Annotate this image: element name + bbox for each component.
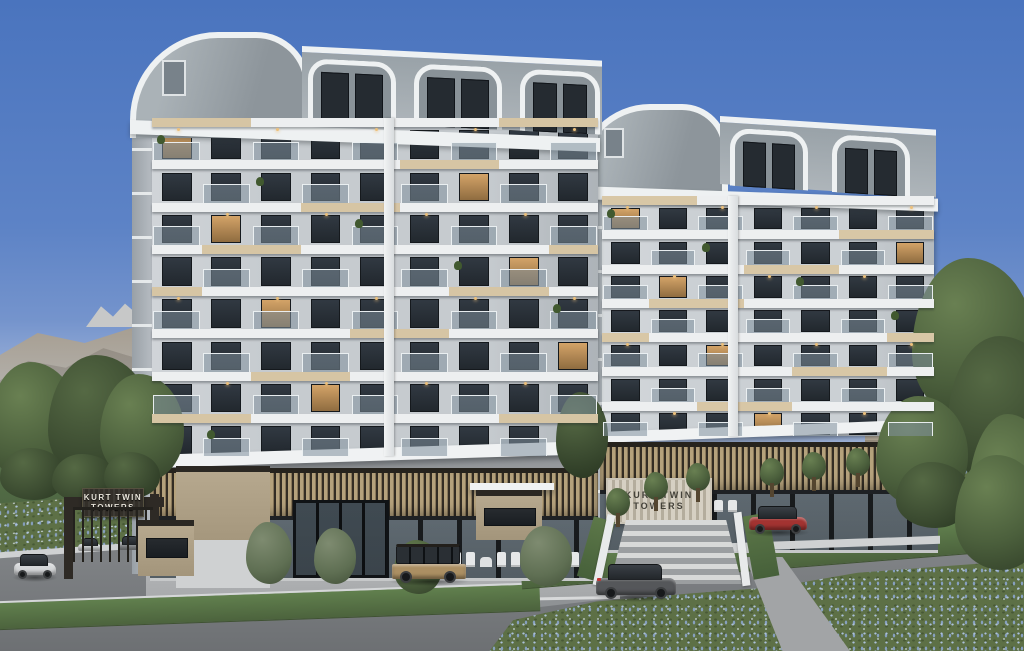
balcony-plant — [702, 243, 710, 252]
slab-segment — [449, 118, 499, 127]
apartment-unit — [251, 254, 301, 287]
slab-segment — [602, 196, 649, 205]
apartment-unit — [839, 342, 886, 367]
tree-trunk — [770, 483, 774, 497]
balcony-railing — [888, 285, 933, 299]
slab-segment — [887, 265, 934, 274]
apartment-window — [801, 310, 829, 332]
cafe-chair — [511, 552, 520, 567]
apartment-unit — [449, 212, 499, 245]
downlight — [276, 128, 279, 131]
apartment-unit — [152, 254, 202, 287]
balcony-slab — [602, 196, 934, 205]
roof-dormer — [832, 134, 910, 197]
downlight — [768, 275, 771, 278]
slab-segment — [400, 329, 450, 338]
balcony-railing — [153, 395, 200, 413]
balcony-railing — [500, 269, 547, 287]
apartment-unit — [152, 212, 202, 245]
roof-dormer — [308, 58, 396, 124]
slab-segment — [251, 118, 301, 127]
apartment-unit — [649, 308, 696, 333]
apartment-unit — [887, 274, 934, 299]
slab-segment — [839, 402, 886, 411]
apartment-unit — [744, 308, 791, 333]
apartment-unit — [887, 239, 934, 264]
apartment-window — [849, 345, 877, 367]
balcony-slab — [152, 414, 598, 423]
car-wheel — [755, 524, 765, 534]
apartment-window — [611, 310, 639, 332]
balcony-plant — [553, 304, 561, 313]
apartment-unit — [400, 212, 450, 245]
apartment-window — [261, 342, 291, 371]
apartment-unit — [202, 169, 252, 202]
balcony-railing — [746, 250, 791, 264]
apartment-unit — [839, 376, 886, 401]
plaza-sign-line2: TOWERS — [633, 501, 684, 512]
balcony-railing — [401, 269, 448, 287]
balcony-railing — [651, 388, 696, 402]
apartment-unit — [449, 338, 499, 371]
apartment-unit — [202, 338, 252, 371]
slab-segment — [202, 118, 252, 127]
apartment-window — [211, 215, 241, 244]
balcony-plant — [256, 177, 264, 186]
apartment-unit — [649, 376, 696, 401]
apartment-window — [410, 215, 440, 244]
apartment-unit — [549, 212, 599, 245]
balcony-railing — [451, 226, 498, 244]
apartment-unit — [499, 423, 549, 456]
apartment-unit — [202, 254, 252, 287]
balcony-railing — [302, 438, 349, 456]
apartment-window — [558, 342, 588, 371]
slab-segment — [301, 287, 351, 296]
slab-segment — [202, 245, 252, 254]
dormer-window — [845, 148, 868, 194]
floor-row — [152, 203, 598, 245]
floor-units — [602, 239, 934, 264]
apartment-window — [211, 384, 241, 413]
cafe-chair — [714, 500, 723, 512]
slab-segment — [792, 333, 839, 342]
apartment-unit — [792, 274, 839, 299]
slab-segment — [152, 203, 202, 212]
white-sedan-car — [14, 552, 56, 578]
slab-segment — [744, 299, 791, 308]
apartment-unit — [792, 308, 839, 333]
slab-segment — [400, 372, 450, 381]
apartment-unit — [202, 423, 252, 456]
apartment-unit — [202, 296, 252, 329]
tree-trunk — [812, 477, 816, 491]
apartment-unit — [400, 381, 450, 414]
slab-segment — [449, 245, 499, 254]
slab-segment — [449, 287, 499, 296]
slab-segment — [744, 402, 791, 411]
apartment-window — [162, 173, 192, 202]
apartment-unit — [202, 381, 252, 414]
floor-units — [602, 342, 934, 367]
apartment-window — [261, 257, 291, 286]
car-wheel — [655, 587, 667, 599]
balcony-railing — [603, 285, 648, 299]
slab-segment — [499, 203, 549, 212]
gate-sign-line1: KURT TWIN — [84, 493, 142, 503]
balcony-railing — [550, 395, 597, 413]
apartment-unit — [792, 239, 839, 264]
slab-segment — [744, 367, 791, 376]
apartment-unit — [301, 338, 351, 371]
balcony-railing — [550, 142, 597, 160]
balcony-slab — [602, 230, 934, 239]
apartment-unit — [549, 296, 599, 329]
slab-segment — [792, 299, 839, 308]
slab-segment — [602, 265, 649, 274]
apartment-unit — [499, 212, 549, 245]
slab-segment — [887, 333, 934, 342]
slab-segment — [400, 203, 450, 212]
slab-segment — [549, 372, 599, 381]
slab-segment — [839, 230, 886, 239]
cafe-chair — [466, 552, 475, 567]
apartment-window — [801, 379, 829, 401]
apartment-unit — [839, 239, 886, 264]
balcony-railing — [500, 353, 547, 371]
balcony-slab — [152, 329, 598, 338]
downlight — [626, 206, 629, 209]
balcony-slab — [152, 203, 598, 212]
balcony-railing — [841, 319, 886, 333]
balcony-plant — [207, 430, 215, 439]
apartment-window — [754, 345, 782, 367]
slab-segment — [549, 203, 599, 212]
slab-segment — [152, 245, 202, 254]
apartment-unit — [152, 169, 202, 202]
apartment-unit — [744, 342, 791, 367]
apartment-unit — [251, 338, 301, 371]
apartment-unit — [602, 239, 649, 264]
roof-vent — [162, 60, 186, 96]
balcony-slab — [152, 372, 598, 381]
apartment-unit — [602, 274, 649, 299]
apartment-unit — [602, 308, 649, 333]
slab-segment — [744, 333, 791, 342]
balcony-railing — [651, 250, 696, 264]
slab-segment — [499, 287, 549, 296]
floor-units — [152, 254, 598, 287]
car-cabin — [396, 544, 460, 564]
balcony-railing — [500, 438, 547, 456]
apartment-unit — [602, 342, 649, 367]
balcony-railing — [888, 353, 933, 367]
tower-a-floors — [152, 118, 598, 456]
car-wheel — [43, 570, 52, 579]
slab-segment — [449, 372, 499, 381]
slab-segment — [499, 118, 549, 127]
downlight — [863, 275, 866, 278]
apartment-unit — [251, 381, 301, 414]
ornamental-tree — [846, 448, 870, 476]
cafe-chair — [497, 552, 506, 567]
slab-segment — [152, 414, 202, 423]
floor-row — [602, 265, 934, 299]
dormer-window — [772, 143, 795, 189]
slab-segment — [887, 299, 934, 308]
apartment-unit — [792, 376, 839, 401]
car-cabin — [608, 564, 662, 580]
apartment-window — [558, 257, 588, 286]
balcony-railing — [746, 319, 791, 333]
balcony-plant — [157, 135, 165, 144]
cafe-table — [480, 557, 492, 567]
slab-segment — [792, 402, 839, 411]
slab-segment — [792, 230, 839, 239]
apartment-unit — [744, 376, 791, 401]
floor-row — [152, 329, 598, 371]
slab-segment — [549, 329, 599, 338]
slab-segment — [549, 245, 599, 254]
apartment-unit — [400, 169, 450, 202]
balcony-railing — [793, 422, 838, 436]
car-cabin — [20, 554, 48, 566]
facade-pilaster — [728, 196, 738, 436]
balcony-railing — [793, 353, 838, 367]
roof-dormer — [730, 128, 808, 191]
apartment-window — [162, 257, 192, 286]
street-tree — [246, 522, 292, 584]
slab-segment — [839, 265, 886, 274]
dormer-window — [321, 72, 349, 122]
apartment-unit — [400, 296, 450, 329]
tower-b-floors — [602, 196, 934, 436]
ornamental-tree — [802, 452, 826, 480]
car-cabin — [758, 506, 797, 519]
floor-row — [602, 230, 934, 264]
apartment-window — [459, 173, 489, 202]
ornamental-tree — [644, 472, 668, 500]
slab-segment — [400, 118, 450, 127]
ornamental-tree — [606, 488, 630, 516]
architectural-rendering: KURT TWIN TOWERS KURT TWIN TOWERS — [0, 0, 1024, 651]
apartment-window — [659, 276, 687, 298]
dormer-window — [743, 141, 766, 187]
balcony-railing — [253, 395, 300, 413]
apartment-window — [311, 299, 341, 328]
slab-segment — [202, 329, 252, 338]
slab-segment — [649, 196, 696, 205]
slab-segment — [202, 287, 252, 296]
slab-segment — [301, 245, 351, 254]
slab-segment — [400, 245, 450, 254]
security-booth — [138, 520, 194, 576]
apartment-window — [410, 299, 440, 328]
slab-segment — [839, 196, 886, 205]
slab-segment — [549, 118, 599, 127]
tower-a-roof — [130, 32, 602, 152]
downlight — [768, 412, 771, 415]
floor-units — [152, 338, 598, 371]
tower-b-roof-slope — [720, 116, 936, 198]
slab-segment — [251, 329, 301, 338]
apartment-unit — [792, 411, 839, 436]
slab-segment — [152, 160, 202, 169]
balcony-railing — [651, 319, 696, 333]
apartment-unit — [449, 169, 499, 202]
balcony-railing — [603, 353, 648, 367]
floor-row — [152, 160, 598, 202]
floor-units — [152, 169, 598, 202]
balcony-railing — [841, 388, 886, 402]
slab-segment — [202, 203, 252, 212]
downlight — [425, 213, 428, 216]
slab-segment — [251, 160, 301, 169]
downlight — [524, 382, 527, 385]
apartment-window — [754, 276, 782, 298]
slab-segment — [499, 160, 549, 169]
balcony-slab — [152, 287, 598, 296]
slab-segment — [602, 333, 649, 342]
slab-segment — [449, 329, 499, 338]
balcony-railing — [203, 438, 250, 456]
apartment-unit — [301, 254, 351, 287]
balcony-railing — [603, 216, 648, 230]
downlight — [425, 382, 428, 385]
downlight — [673, 412, 676, 415]
street-tree — [314, 528, 356, 584]
apartment-window — [659, 345, 687, 367]
apartment-window — [410, 384, 440, 413]
downlight — [721, 206, 724, 209]
balcony-railing — [451, 395, 498, 413]
apartment-window — [801, 242, 829, 264]
apartment-window — [311, 215, 341, 244]
apartment-unit — [301, 423, 351, 456]
slab-segment — [449, 203, 499, 212]
balcony-railing — [451, 311, 498, 329]
slab-segment — [400, 287, 450, 296]
balcony-slab — [602, 265, 934, 274]
balcony-plant — [355, 219, 363, 228]
ornamental-tree — [760, 458, 784, 486]
downlight — [276, 297, 279, 300]
downlight — [673, 275, 676, 278]
tree-trunk — [616, 513, 620, 527]
downlight — [863, 412, 866, 415]
apartment-unit — [400, 338, 450, 371]
booth-window — [146, 538, 188, 558]
slab-segment — [499, 245, 549, 254]
apartment-window — [611, 379, 639, 401]
apartment-unit — [499, 381, 549, 414]
slab-segment — [449, 160, 499, 169]
apartment-unit — [839, 308, 886, 333]
car-wheel — [400, 571, 412, 583]
slab-segment — [839, 333, 886, 342]
balcony-slab — [602, 367, 934, 376]
balcony-railing — [401, 438, 448, 456]
slab-segment — [649, 299, 696, 308]
slab-segment — [251, 287, 301, 296]
floor-units — [602, 376, 934, 401]
apartment-window — [162, 342, 192, 371]
dormer-window — [874, 150, 897, 196]
apartment-unit — [202, 212, 252, 245]
apartment-unit — [301, 212, 351, 245]
balcony-railing — [550, 311, 597, 329]
balcony-railing — [401, 184, 448, 202]
apartment-window — [311, 384, 341, 413]
kiosk-window — [484, 508, 536, 526]
gray-suv-car — [596, 560, 676, 598]
tree-trunk — [856, 473, 860, 487]
taillight — [597, 578, 601, 581]
balcony-railing — [746, 388, 791, 402]
balcony-railing — [793, 285, 838, 299]
floor-row — [602, 367, 934, 401]
balcony-railing — [153, 226, 200, 244]
balcony-railing — [253, 226, 300, 244]
apartment-unit — [449, 296, 499, 329]
downlight — [177, 128, 180, 131]
tan-jeep-car — [392, 544, 466, 582]
balcony-railing — [253, 311, 300, 329]
slab-segment — [792, 196, 839, 205]
floor-units — [152, 296, 598, 329]
slab-segment — [792, 265, 839, 274]
slab-segment — [602, 299, 649, 308]
slab-segment — [499, 414, 549, 423]
floor-row — [152, 287, 598, 329]
car-wheel — [444, 571, 456, 583]
balcony-railing — [302, 353, 349, 371]
balcony-railing — [253, 142, 300, 160]
downlight — [721, 343, 724, 346]
apartment-window — [611, 242, 639, 264]
slab-segment — [839, 299, 886, 308]
apartment-unit — [602, 376, 649, 401]
slab-segment — [251, 203, 301, 212]
floor-units — [152, 212, 598, 245]
apartment-unit — [499, 254, 549, 287]
slab-segment — [251, 245, 301, 254]
slab-segment — [152, 118, 202, 127]
floor-row — [602, 299, 934, 333]
slab-segment — [839, 367, 886, 376]
roof-vent — [604, 128, 624, 158]
slab-segment — [649, 333, 696, 342]
apartment-unit — [649, 239, 696, 264]
apartment-unit — [152, 296, 202, 329]
downlight — [524, 213, 527, 216]
apartment-unit — [251, 296, 301, 329]
slab-segment — [649, 367, 696, 376]
downlight — [626, 343, 629, 346]
balcony-railing — [203, 353, 250, 371]
dormer-window — [355, 74, 383, 124]
slab-segment — [549, 287, 599, 296]
floor-row — [152, 372, 598, 414]
slab-segment — [649, 230, 696, 239]
slab-segment — [887, 367, 934, 376]
slab-segment — [744, 230, 791, 239]
balcony-railing — [203, 269, 250, 287]
slab-segment — [301, 372, 351, 381]
slab-segment — [202, 372, 252, 381]
slab-segment — [301, 160, 351, 169]
apartment-window — [896, 242, 924, 264]
